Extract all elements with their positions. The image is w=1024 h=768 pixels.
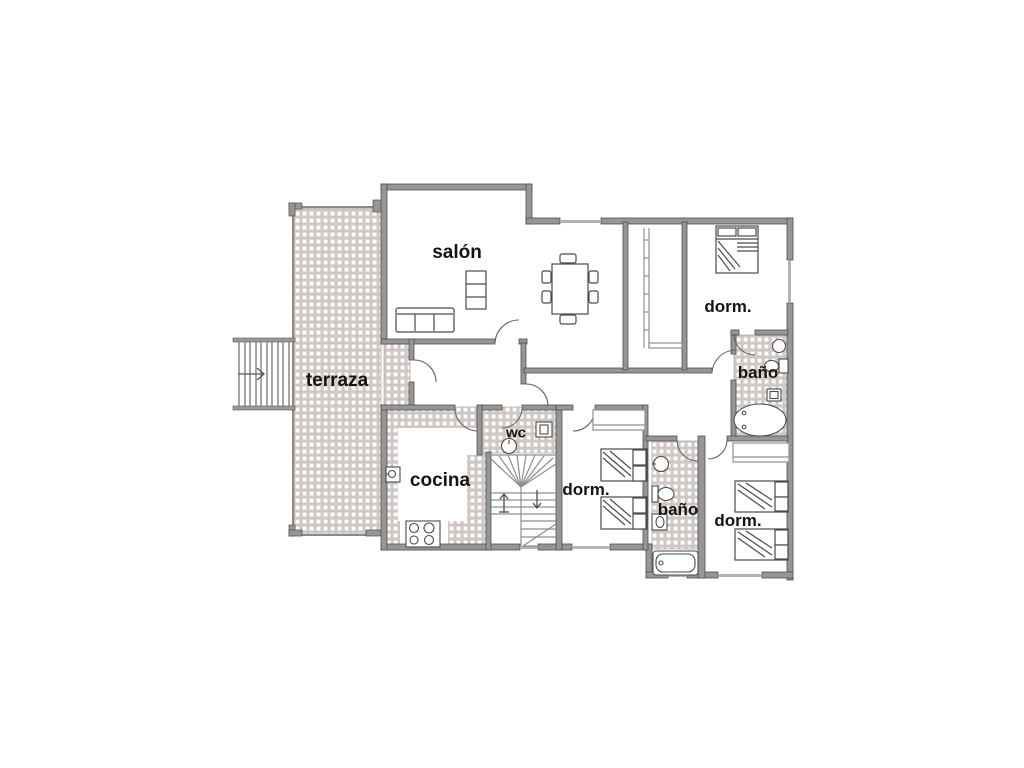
stairs-up-arrow xyxy=(499,494,509,512)
window-salon-top xyxy=(560,220,601,223)
sofa xyxy=(396,308,454,332)
closet xyxy=(593,410,645,430)
room-label-terraza: terraza xyxy=(306,370,368,392)
terrace-entry-nook-floor xyxy=(384,344,410,406)
oval-bathtub xyxy=(734,404,786,436)
closet xyxy=(733,443,789,462)
door-dorm-bottom xyxy=(708,440,727,459)
room-label-bano-bottom: baño xyxy=(658,500,699,520)
room-label-wc: wc xyxy=(506,425,526,442)
window-dorm-top-right xyxy=(788,260,791,303)
door-salon-hall xyxy=(495,320,519,343)
room-label-dorm-top: dorm. xyxy=(704,297,751,317)
bidet xyxy=(767,389,781,401)
dorm-top-furniture xyxy=(644,226,758,348)
single-bed-2 xyxy=(735,529,788,560)
double-bed xyxy=(716,226,758,273)
interior-stairs xyxy=(488,455,557,546)
window-dorm-mid xyxy=(572,546,610,549)
single-bed-1 xyxy=(735,481,788,512)
shelf-unit xyxy=(466,271,486,309)
single-bed-1 xyxy=(601,449,647,481)
stairs-direction-arrow xyxy=(238,368,264,380)
dorm-mid-furniture xyxy=(593,410,647,529)
door-dorm-mid xyxy=(573,409,595,431)
room-label-cocina: cocina xyxy=(410,470,470,492)
floor-plan-page: salón terraza cocina wc dorm. baño dorm.… xyxy=(0,0,1024,768)
dining-table-and-chairs xyxy=(542,254,598,324)
wall-appliance xyxy=(386,467,400,482)
salon-furniture xyxy=(396,254,598,332)
stove-cooktop xyxy=(406,521,440,547)
wardrobe-strip xyxy=(644,228,682,348)
door-terrace-nook xyxy=(414,360,436,382)
single-bed-2 xyxy=(601,497,647,529)
dorm-bottom-furniture xyxy=(733,443,789,560)
room-label-bano-top: baño xyxy=(738,363,779,383)
bathtub xyxy=(653,551,698,575)
floor-plan-drawing xyxy=(0,0,1024,768)
exterior-stairs xyxy=(233,338,295,410)
sink xyxy=(773,340,786,353)
room-label-dorm-mid: dorm. xyxy=(562,480,609,500)
door-hall-inner xyxy=(526,384,548,406)
room-label-salon: salón xyxy=(432,242,482,264)
room-label-dorm-bottom: dorm. xyxy=(714,511,761,531)
wc-cistern-unit xyxy=(536,422,552,437)
window-dorm-bottom xyxy=(718,574,762,577)
